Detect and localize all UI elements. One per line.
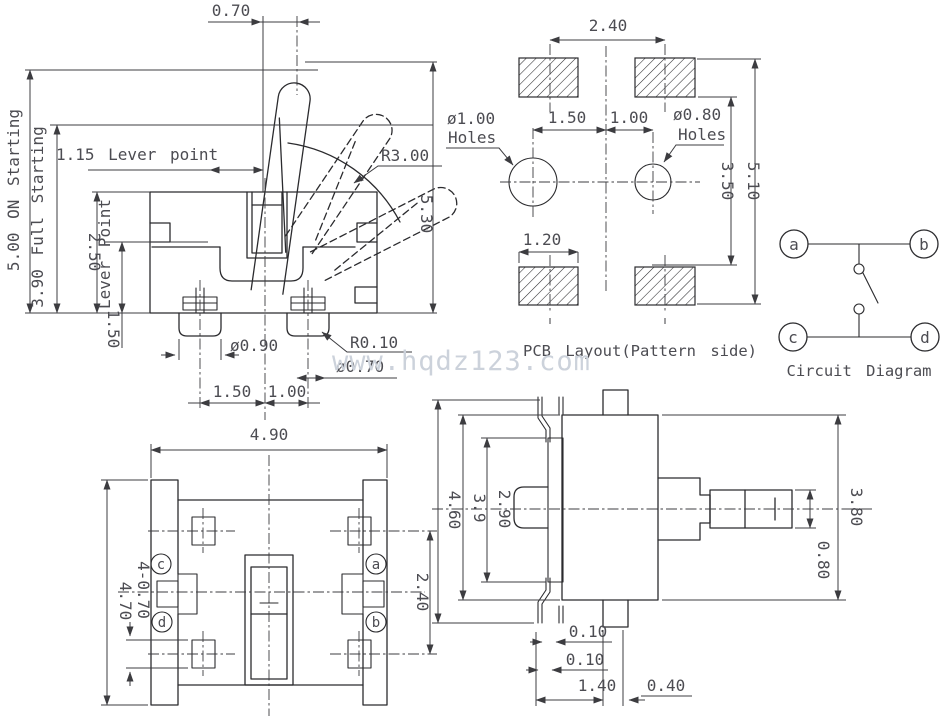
- bottom-terminal-b: b: [372, 615, 380, 631]
- bottom-terminal-a: a: [372, 557, 380, 573]
- dim-label-1-50-left: 1.50: [104, 310, 123, 349]
- dim-hole-pitch: 1.50 1.00: [533, 108, 653, 130]
- engineering-drawing-canvas: 0.70 5.00 ON Starting 3.90 Full Starting…: [0, 0, 945, 718]
- bent-terminals: [538, 397, 563, 623]
- dim-label-lever-point-v: Lever Point: [95, 199, 114, 309]
- terminal-a-label: a: [789, 235, 799, 254]
- pcb-layout-view: 2.40 1.50 1.00 ø1.00 Holes ø0.80 Holes 3…: [446, 16, 763, 360]
- pad-bottom-left: [519, 267, 578, 305]
- pad-top-left: [519, 58, 578, 97]
- dim-0-10-first: 0.10: [530, 622, 612, 642]
- side-profile-body: [514, 390, 792, 627]
- bottom-terminal-d: d: [158, 615, 166, 631]
- dim-label-1-20: 1.20: [523, 230, 562, 249]
- terminal-b-label: b: [919, 235, 929, 254]
- dim-5-30: 5.30: [305, 62, 437, 313]
- dim-label-1-50: 1.50: [213, 382, 252, 401]
- dim-0-90: ø0.90: [161, 336, 278, 360]
- dim-label-r3-00: R3.00: [381, 146, 429, 165]
- dim-label-4-70: 4.70: [116, 582, 135, 621]
- terminal-d-label: d: [920, 328, 930, 347]
- dim-label-4-60: 4.60: [445, 491, 464, 530]
- dim-label-2-40-pcb: 2.40: [589, 16, 628, 35]
- dim-1-20: 1.20: [519, 230, 578, 263]
- dim-label-on-starting: 5.00 ON Starting: [4, 109, 23, 271]
- label-hole-right-word: Holes: [678, 125, 726, 144]
- dim-label-4-90: 4.90: [250, 425, 289, 444]
- dim-label-0-80: 0.80: [814, 541, 833, 580]
- dim-label-3-50: 3.50: [718, 162, 737, 201]
- terminal-c-label: c: [788, 328, 798, 347]
- circuit-caption: Circuit Diagram: [787, 362, 932, 380]
- dim-label-5-30: 5.30: [417, 195, 436, 234]
- switch-housing: [150, 192, 377, 313]
- dim-label-2-90: 2.90: [495, 490, 514, 529]
- dim-label-full-starting: 3.90 Full Starting: [28, 126, 47, 307]
- label-hole-right-dia: ø0.80: [673, 105, 721, 124]
- dim-label-0-40: 0.40: [647, 676, 686, 695]
- dim-0-70-top: 0.70: [208, 1, 320, 192]
- circuit-wires: [807, 244, 911, 337]
- label-hole-left: ø1.00 Holes: [446, 109, 513, 165]
- dim-label-0-90: ø0.90: [230, 336, 278, 355]
- label-hole-right: ø0.80 Holes: [664, 105, 726, 162]
- terminal-pins: [179, 288, 329, 336]
- drawing-page: 0.70 5.00 ON Starting 3.90 Full Starting…: [0, 0, 945, 718]
- leader-r3-00: R3.00: [354, 146, 442, 183]
- label-hole-left-word: Holes: [448, 128, 496, 147]
- side-profile-view: 4.60 3.9 2.90 3.80 0.80 0.10: [432, 390, 872, 706]
- centerlines-side-view: [200, 16, 308, 420]
- label-hole-left-dia: ø1.00: [447, 109, 495, 128]
- dim-label-0-10-second: 0.10: [566, 650, 605, 669]
- dim-pin-pitch: 1.50 1.00: [188, 382, 320, 403]
- seal-boot: [514, 487, 548, 528]
- dim-label-0-70: 0.70: [212, 1, 251, 20]
- dim-label-lever-point-h: 1.15 Lever point: [56, 145, 218, 164]
- dim-2-40-pcb: 2.40: [550, 16, 665, 40]
- dim-label-1-00-pcb: 1.00: [610, 108, 649, 127]
- bottom-view-terminal-labels: c d a b: [151, 554, 386, 632]
- dim-label-4x0-70: 4-0.70: [134, 561, 153, 619]
- watermark: www.hqdz123.com: [332, 346, 591, 377]
- dim-label-0-10-first: 0.10: [569, 622, 608, 641]
- dim-label-1-40: 1.40: [578, 676, 617, 695]
- dim-label-1-50-pcb: 1.50: [548, 108, 587, 127]
- bottom-terminal-c: c: [157, 557, 165, 573]
- dim-2-90: 2.90: [481, 438, 546, 582]
- dim-label-1-00: 1.00: [268, 382, 307, 401]
- dim-label-3-80: 3.80: [847, 488, 866, 527]
- switch-blade: [863, 273, 878, 303]
- flange-plate: [548, 438, 563, 582]
- dim-label-3-9: 3.9: [470, 494, 489, 523]
- bottom-view-side-stubs: [157, 574, 384, 614]
- circuit-diagram: a b c d Circuit Diagram: [779, 230, 939, 380]
- dim-label-5-10: 5.10: [744, 162, 763, 201]
- dim-0-80: 0.80: [795, 490, 833, 579]
- centerlines-bottom-view: [118, 455, 425, 716]
- dim-2-40-bottom: 2.40: [413, 531, 432, 654]
- dim-0-40: 0.40: [629, 676, 692, 700]
- dim-0-10-second: 0.10: [526, 650, 608, 670]
- dim-label-2-40-bottom: 2.40: [413, 573, 432, 612]
- bottom-view: 4.90 4.70 4-0.70 2.40 c d a b: [101, 425, 437, 716]
- dim-3-80: 3.80: [662, 415, 866, 600]
